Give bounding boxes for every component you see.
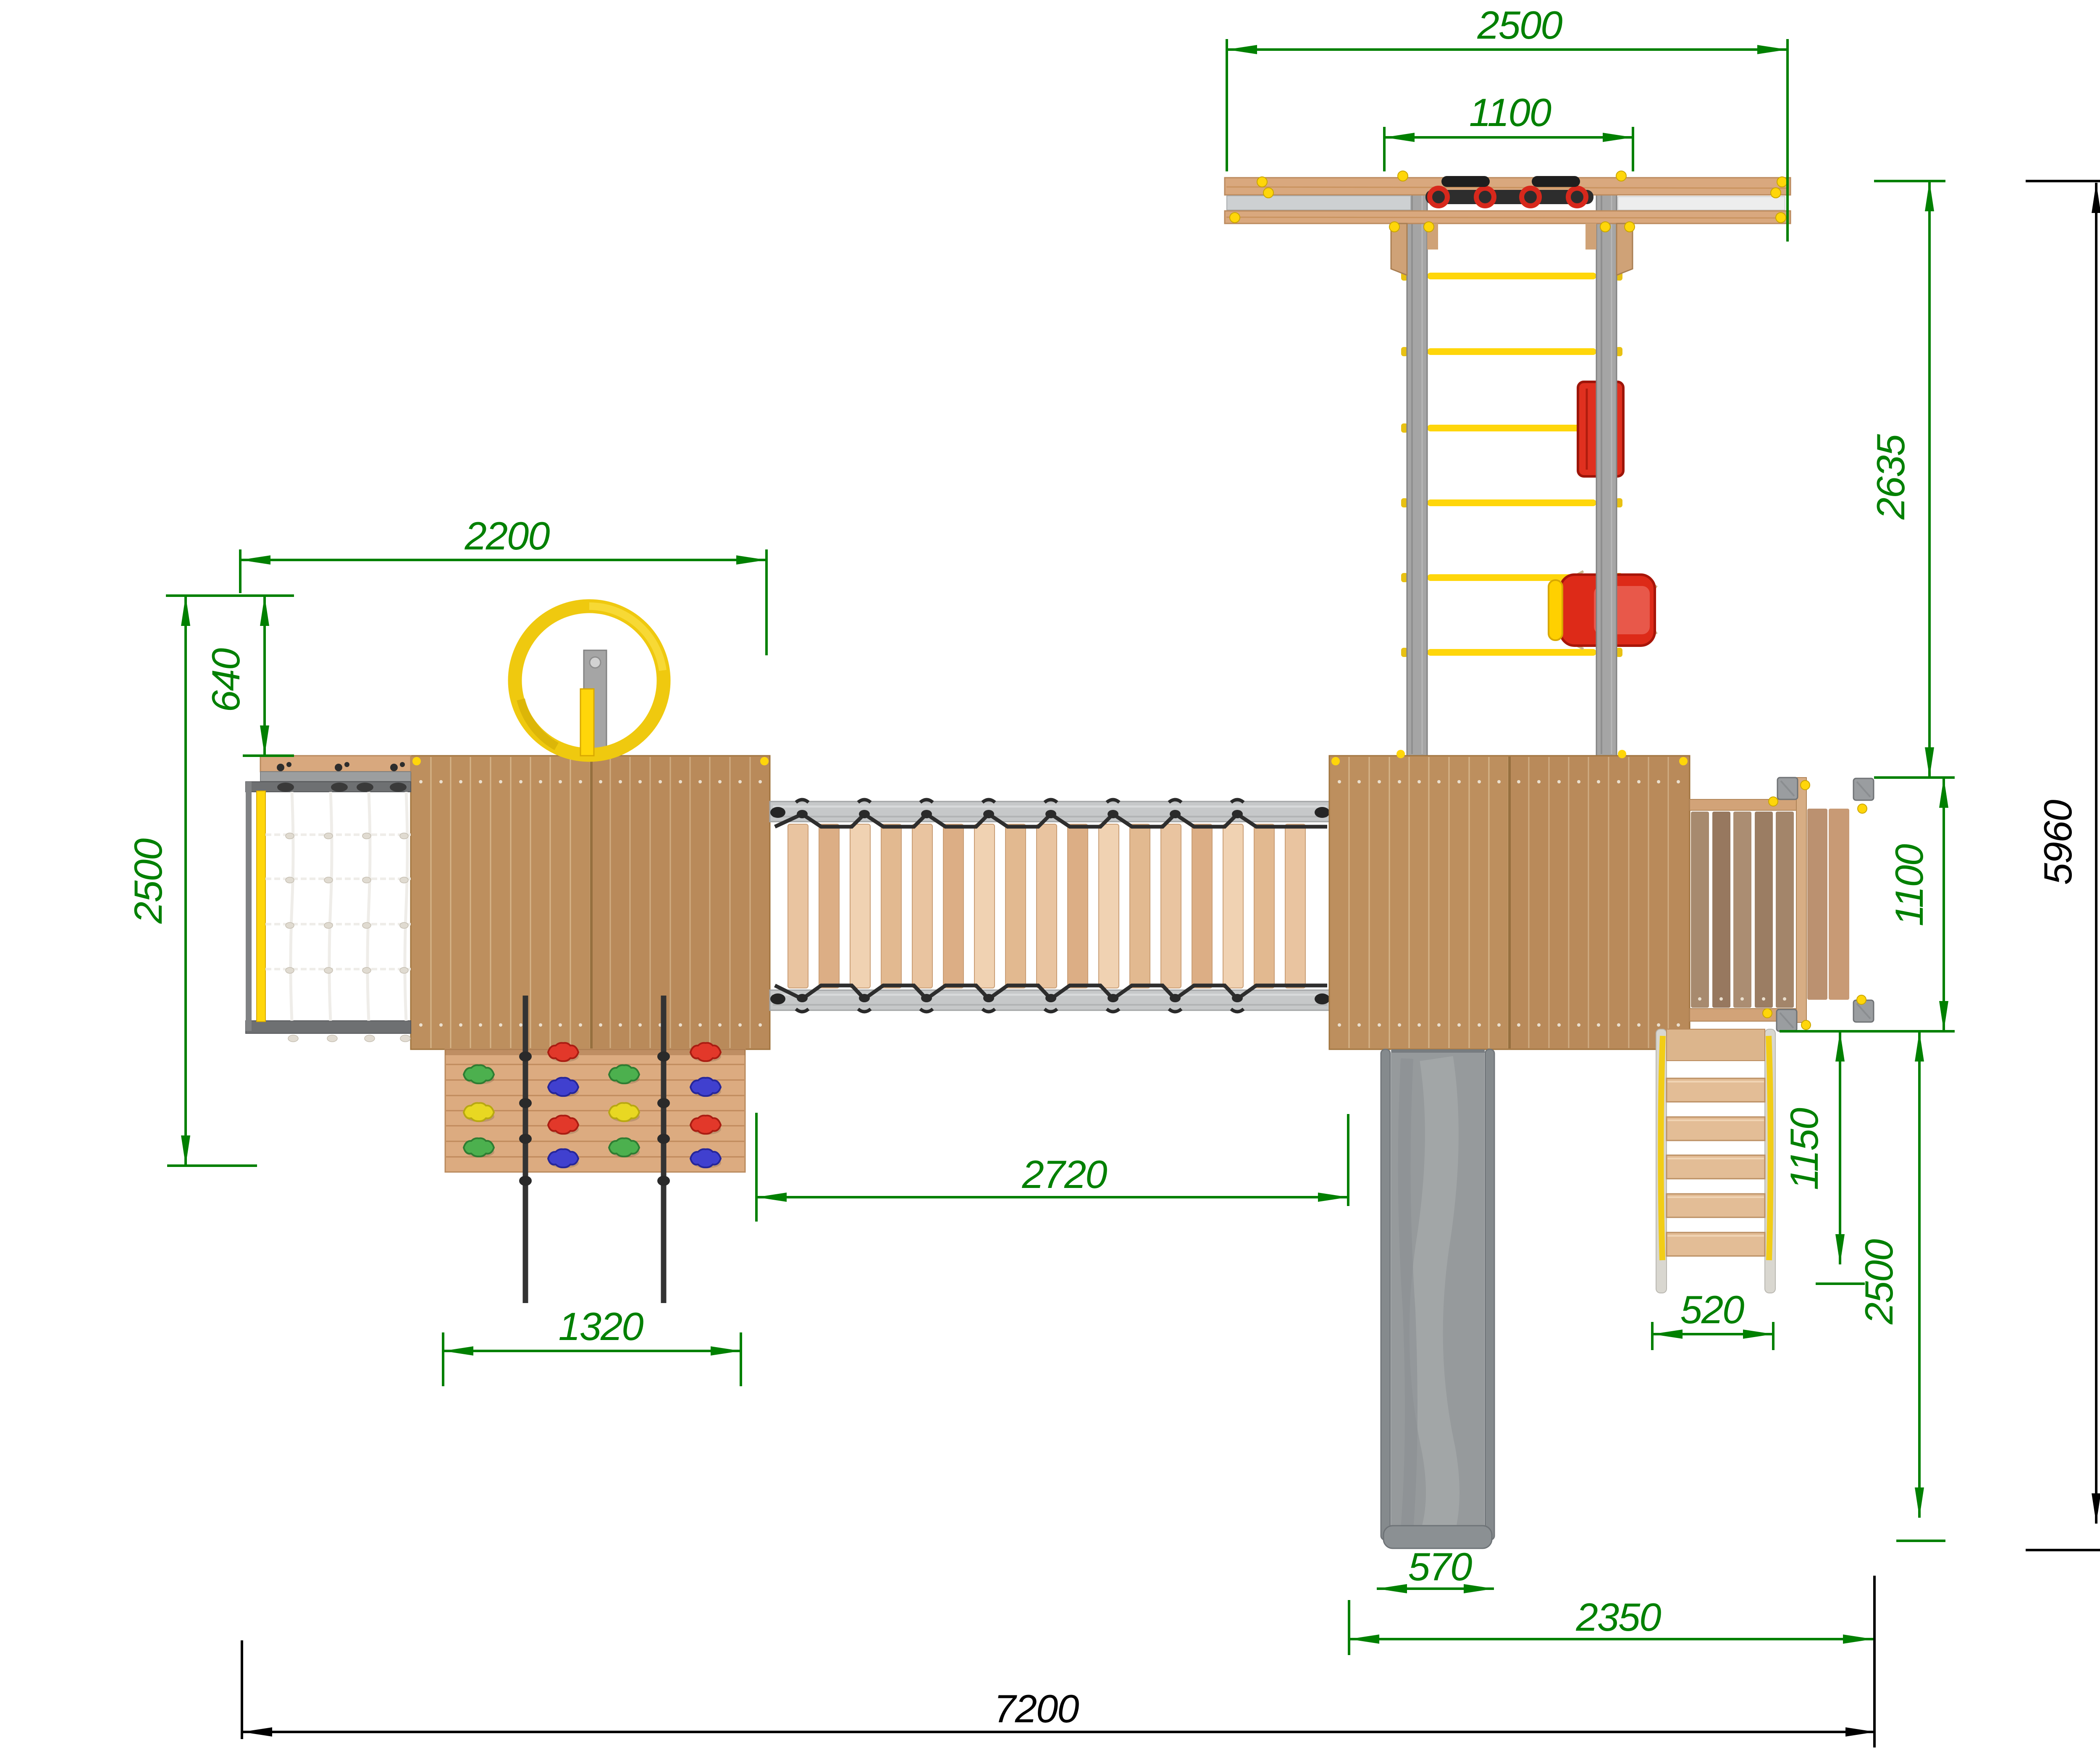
svg-text:640: 640 xyxy=(204,648,248,712)
svg-text:1150: 1150 xyxy=(1782,1108,1826,1190)
svg-text:1320: 1320 xyxy=(558,1304,643,1348)
svg-text:2635: 2635 xyxy=(1869,434,1913,520)
svg-text:570: 570 xyxy=(1408,1545,1473,1589)
svg-text:2500: 2500 xyxy=(1477,3,1562,47)
svg-text:2350: 2350 xyxy=(1575,1595,1661,1639)
svg-text:7200: 7200 xyxy=(994,1687,1079,1731)
svg-text:2720: 2720 xyxy=(1021,1152,1107,1196)
svg-text:520: 520 xyxy=(1680,1288,1745,1332)
svg-text:1100: 1100 xyxy=(1887,844,1931,926)
svg-text:5960: 5960 xyxy=(2036,800,2080,885)
svg-text:2500: 2500 xyxy=(1857,1239,1901,1325)
svg-text:2200: 2200 xyxy=(464,514,550,558)
svg-text:1100: 1100 xyxy=(1469,90,1551,134)
svg-text:2500: 2500 xyxy=(126,838,170,924)
